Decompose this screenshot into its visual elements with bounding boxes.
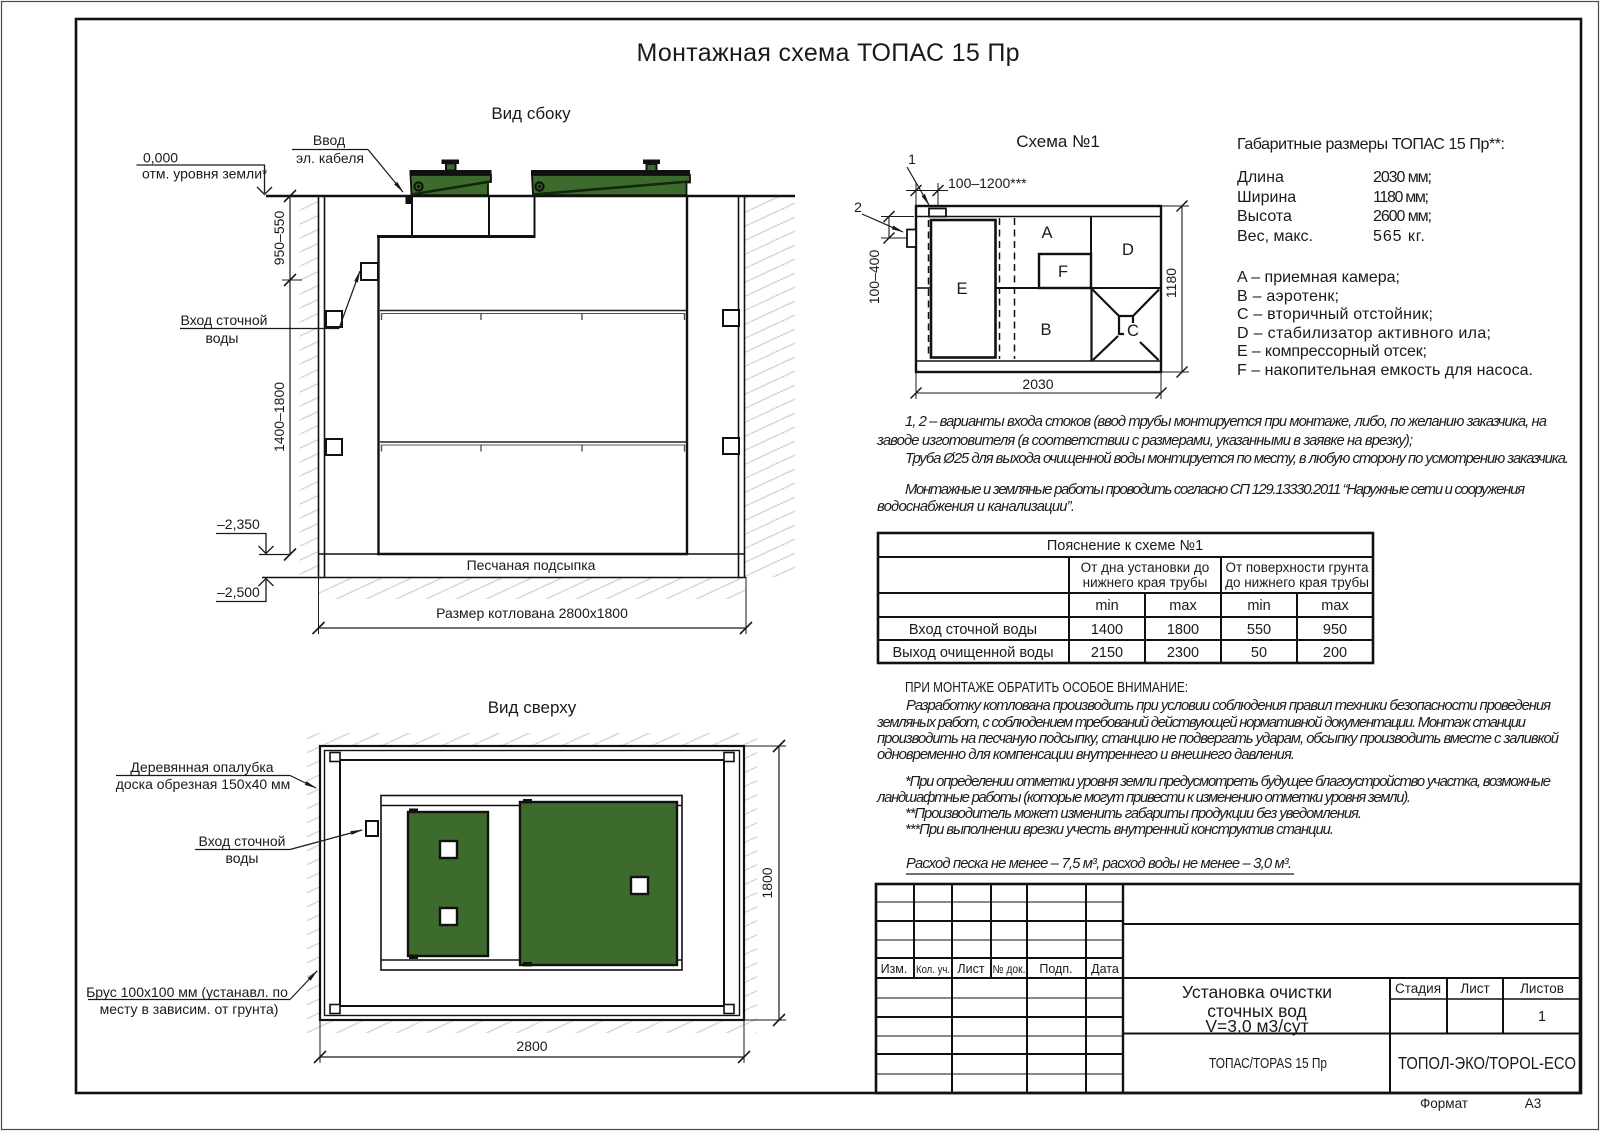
- svg-text:2030 мм;: 2030 мм;: [1373, 169, 1432, 186]
- svg-text:–2,500: –2,500: [217, 584, 260, 600]
- svg-text:50: 50: [1251, 645, 1267, 661]
- svg-text:E – компрессорный отсек;: E – компрессорный отсек;: [1237, 343, 1427, 360]
- svg-text:max: max: [1321, 598, 1349, 614]
- svg-text:200: 200: [1323, 645, 1347, 661]
- svg-text:Стадия: Стадия: [1395, 981, 1441, 996]
- svg-text:C – вторичный отстойник;: C – вторичный отстойник;: [1237, 306, 1433, 323]
- svg-text:min: min: [1095, 598, 1118, 614]
- svg-text:Монтажные и земляные работы пр: Монтажные и земляные работы проводить со…: [905, 482, 1525, 498]
- svg-text:2600 мм;: 2600 мм;: [1373, 208, 1432, 225]
- svg-text:ПРИ МОНТАЖЕ ОБРАТИТЬ ОСОБОЕ ВН: ПРИ МОНТАЖЕ ОБРАТИТЬ ОСОБОЕ ВНИМАНИЕ:: [905, 679, 1188, 696]
- svg-text:Брус 100х100 мм (устанавл. по: Брус 100х100 мм (устанавл. по: [86, 984, 288, 1000]
- svg-text:Установка очистки: Установка очистки: [1182, 982, 1332, 1002]
- svg-text:1400: 1400: [1091, 622, 1123, 638]
- svg-text:Кол. уч.: Кол. уч.: [916, 964, 950, 976]
- svg-text:Выход очищенной воды: Выход очищенной воды: [892, 645, 1053, 661]
- svg-text:2800: 2800: [516, 1038, 547, 1054]
- svg-text:Пояснение к схеме №1: Пояснение к схеме №1: [1047, 538, 1203, 554]
- svg-text:***При выполнении врезки учест: ***При выполнении врезки учесть внутренн…: [905, 822, 1334, 838]
- svg-text:1, 2 – варианты входа стоков: 1, 2 – варианты входа стоков (ввод трубы…: [905, 414, 1547, 430]
- svg-text:земляных работ, с соблюдением: земляных работ, с соблюдением требований…: [876, 715, 1526, 731]
- svg-text:*При определении отметки уровн: *При определении отметки уровня земли пр…: [905, 774, 1551, 790]
- svg-text:воды: воды: [206, 330, 239, 346]
- svg-text:От дна установки до: От дна установки до: [1081, 560, 1210, 575]
- svg-text:C: C: [1127, 322, 1139, 340]
- svg-text:2030: 2030: [1022, 376, 1053, 392]
- svg-text:Дата: Дата: [1091, 962, 1119, 976]
- svg-text:B: B: [1040, 321, 1051, 339]
- svg-text:950–550: 950–550: [271, 211, 287, 266]
- svg-text:воды: воды: [226, 850, 259, 866]
- svg-text:производить на песчаную подсып: производить на песчаную подсыпку, станци…: [877, 731, 1559, 747]
- svg-text:Лист: Лист: [1460, 981, 1489, 996]
- svg-text:заводе изготовителя (в соответ: заводе изготовителя (в соответствии с ра…: [876, 433, 1413, 449]
- svg-text:Габаритные размеры ТОПАС 15 Пр: Габаритные размеры ТОПАС 15 Пр**:: [1237, 136, 1505, 153]
- svg-text:550: 550: [1247, 622, 1271, 638]
- svg-text:ТОПОЛ-ЭКО/TOPOL-ECO: ТОПОЛ-ЭКО/TOPOL-ECO: [1398, 1053, 1576, 1073]
- svg-text:1: 1: [1538, 1009, 1546, 1025]
- svg-text:100–400: 100–400: [866, 250, 882, 305]
- svg-text:1180 мм;: 1180 мм;: [1373, 189, 1429, 206]
- svg-text:V=3,0 м3/сут: V=3,0 м3/сут: [1205, 1016, 1308, 1036]
- svg-text:Формат: Формат: [1420, 1096, 1468, 1111]
- svg-text:Вид сверху: Вид сверху: [488, 698, 577, 717]
- svg-text:месту в зависим. от грунта): месту в зависим. от грунта): [100, 1001, 279, 1017]
- svg-text:Подп.: Подп.: [1039, 962, 1072, 976]
- svg-text:Вход сточной: Вход сточной: [181, 312, 268, 328]
- svg-text:Ввод: Ввод: [313, 132, 345, 148]
- svg-text:1800: 1800: [759, 867, 775, 898]
- svg-text:А3: А3: [1525, 1096, 1542, 1111]
- svg-text:B – аэротенк;: B – аэротенк;: [1237, 288, 1339, 305]
- svg-text:Расход песка не менее – 7,5 м³: Расход песка не менее – 7,5 м³, расход в…: [906, 856, 1292, 872]
- svg-text:1180: 1180: [1163, 268, 1179, 298]
- svg-text:Вес, макс.: Вес, макс.: [1237, 228, 1313, 245]
- svg-text:2300: 2300: [1167, 645, 1199, 661]
- svg-text:100–1200***: 100–1200***: [948, 175, 1027, 191]
- svg-text:Труба Ø25 для выхода очищенной: Труба Ø25 для выхода очищенной воды монт…: [905, 451, 1569, 467]
- svg-text:От поверхности грунта: От поверхности грунта: [1225, 560, 1369, 575]
- svg-text:950: 950: [1323, 622, 1347, 638]
- svg-text:D: D: [1122, 241, 1134, 259]
- svg-text:доска обрезная 150х40 мм: доска обрезная 150х40 мм: [116, 776, 291, 792]
- svg-text:F: F: [1058, 263, 1068, 281]
- svg-text:E: E: [956, 280, 967, 298]
- svg-text:A: A: [1041, 224, 1052, 242]
- svg-text:ТОПАС/TOPAS 15 Пр: ТОПАС/TOPAS 15 Пр: [1209, 1055, 1327, 1072]
- svg-text:Деревянная опалубка: Деревянная опалубка: [130, 759, 273, 775]
- svg-text:ландшафтные работы (которые мо: ландшафтные работы (которые могут привес…: [876, 790, 1411, 806]
- svg-text:Высота: Высота: [1237, 208, 1292, 225]
- svg-text:Вид сбоку: Вид сбоку: [491, 104, 571, 123]
- svg-text:0,000: 0,000: [143, 150, 178, 166]
- svg-text:Лист: Лист: [957, 962, 984, 976]
- svg-text:min: min: [1247, 598, 1270, 614]
- svg-text:Разработку котлована производи: Разработку котлована производить при усл…: [906, 698, 1551, 714]
- svg-text:565 кг.: 565 кг.: [1373, 228, 1425, 245]
- svg-text:D – стабилизатор активного ила: D – стабилизатор активного ила;: [1237, 325, 1491, 342]
- svg-text:Вход сточной: Вход сточной: [199, 833, 286, 849]
- svg-text:Песчаная подсыпка: Песчаная подсыпка: [467, 557, 596, 573]
- svg-text:2150: 2150: [1091, 645, 1123, 661]
- svg-text:Размер котлована 2800х1800: Размер котлована 2800х1800: [436, 605, 628, 621]
- svg-text:2: 2: [854, 199, 862, 215]
- svg-text:1800: 1800: [1167, 622, 1199, 638]
- svg-text:нижнего края трубы: нижнего края трубы: [1083, 575, 1208, 590]
- svg-text:**Производитель может изменить: **Производитель может изменить габариты …: [905, 806, 1362, 822]
- svg-text:№ док.: № док.: [993, 964, 1026, 976]
- svg-text:водоснабжения и канализации”.: водоснабжения и канализации”.: [877, 499, 1075, 515]
- svg-text:Изм.: Изм.: [881, 962, 908, 976]
- svg-text:Листов: Листов: [1520, 981, 1564, 996]
- svg-text:до нижнего края трубы: до нижнего края трубы: [1225, 575, 1369, 590]
- svg-text:одновременно для компенсации в: одновременно для компенсации внутреннего…: [877, 747, 1295, 763]
- svg-text:эл. кабеля: эл. кабеля: [296, 150, 364, 166]
- svg-text:1: 1: [908, 151, 916, 167]
- svg-text:Монтажная схема ТОПАС 15 Пр: Монтажная схема ТОПАС 15 Пр: [637, 39, 1020, 67]
- svg-text:1400–1800: 1400–1800: [271, 382, 287, 452]
- svg-text:–2,350: –2,350: [217, 516, 260, 532]
- svg-text:Схема №1: Схема №1: [1016, 132, 1100, 151]
- svg-text:Длина: Длина: [1237, 169, 1284, 186]
- svg-text:Вход сточной воды: Вход сточной воды: [909, 622, 1037, 638]
- svg-text:F – накопительная емкость для: F – накопительная емкость для насоса.: [1237, 362, 1533, 379]
- svg-text:max: max: [1169, 598, 1197, 614]
- svg-text:отм. уровня земли*: отм. уровня земли*: [142, 166, 268, 182]
- svg-text:A – приемная камера;: A – приемная камера;: [1237, 269, 1400, 286]
- svg-text:Ширина: Ширина: [1237, 189, 1296, 206]
